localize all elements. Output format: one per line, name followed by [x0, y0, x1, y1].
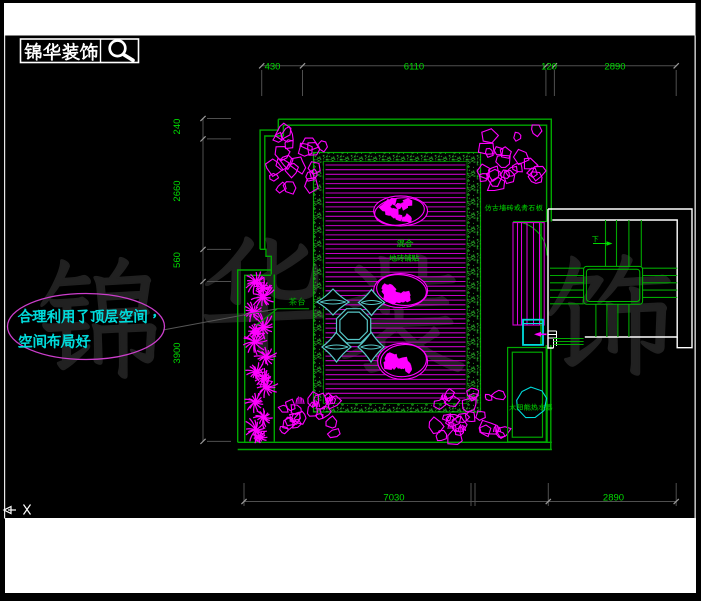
svg-text:6110: 6110: [404, 61, 424, 72]
svg-text:2660: 2660: [172, 180, 183, 201]
svg-text:2890: 2890: [603, 493, 624, 504]
svg-text:3900: 3900: [172, 342, 183, 363]
svg-text:430: 430: [265, 61, 281, 72]
svg-text:120: 120: [541, 61, 557, 72]
svg-text:560: 560: [172, 252, 183, 268]
svg-text:240: 240: [172, 119, 183, 135]
svg-text:2890: 2890: [604, 61, 625, 72]
svg-text:7030: 7030: [383, 493, 404, 504]
